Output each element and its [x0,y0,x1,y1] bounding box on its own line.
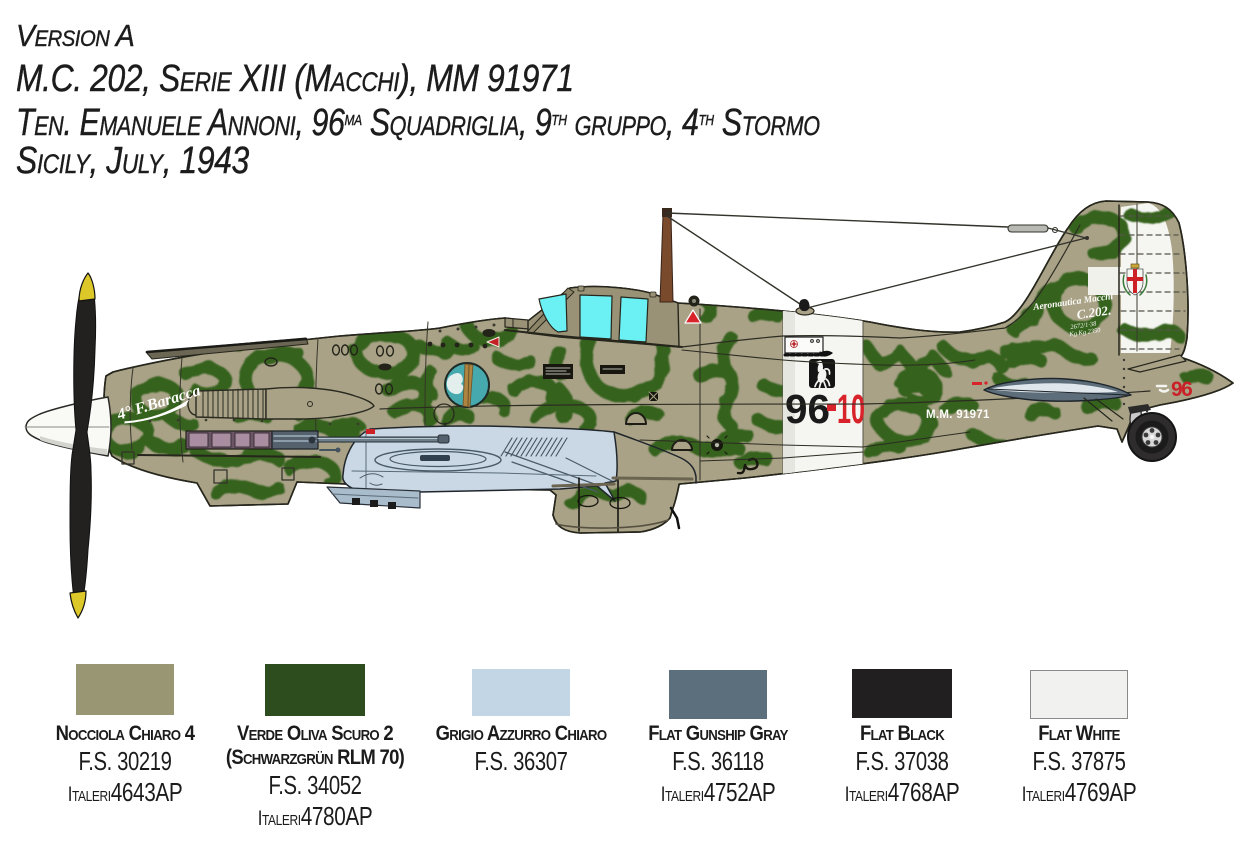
svg-text:96: 96 [785,386,830,432]
svg-text:M.M. 91971: M.M. 91971 [926,409,990,421]
svg-text:96: 96 [1171,378,1192,401]
svg-text:10: 10 [837,386,865,432]
